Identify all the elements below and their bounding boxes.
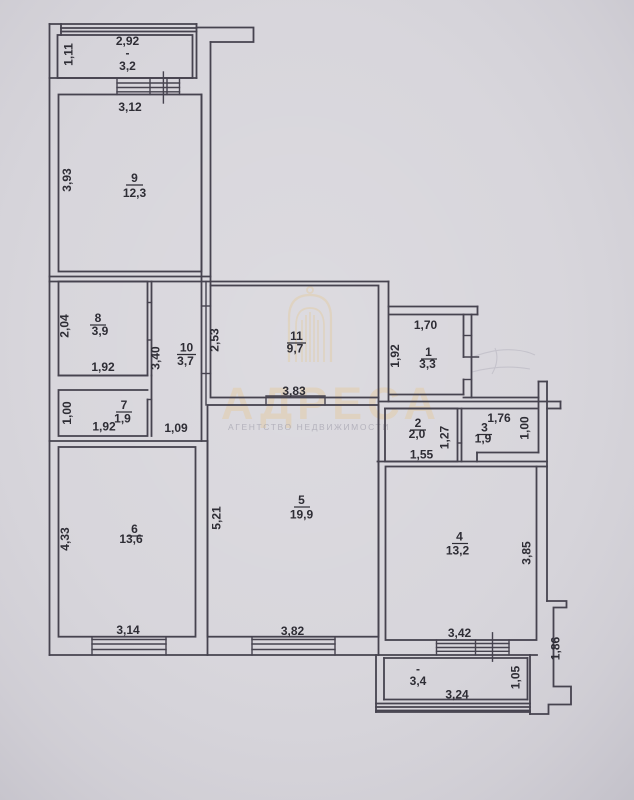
svg-text:1,09: 1,09: [164, 421, 188, 435]
svg-text:3,24: 3,24: [445, 688, 469, 702]
svg-text:7: 7: [121, 398, 128, 412]
svg-text:3,82: 3,82: [281, 624, 305, 638]
svg-text:1,92: 1,92: [91, 360, 115, 374]
svg-text:3,3: 3,3: [419, 357, 436, 371]
svg-text:3,12: 3,12: [118, 100, 142, 114]
svg-text:3,85: 3,85: [520, 541, 534, 565]
svg-text:АГЕНТСТВО НЕДВИЖИМОСТИ: АГЕНТСТВО НЕДВИЖИМОСТИ: [228, 422, 390, 432]
svg-text:12,3: 12,3: [123, 186, 147, 200]
svg-text:2,04: 2,04: [58, 314, 72, 338]
svg-text:3,2: 3,2: [119, 59, 136, 73]
svg-text:5,21: 5,21: [210, 506, 224, 530]
svg-text:5: 5: [298, 493, 305, 507]
svg-text:3,83: 3,83: [282, 384, 306, 398]
svg-text:3,93: 3,93: [60, 168, 74, 192]
svg-text:1,86: 1,86: [549, 636, 563, 660]
svg-text:1,92: 1,92: [388, 344, 402, 368]
svg-text:3,7: 3,7: [177, 354, 194, 368]
svg-text:1,9: 1,9: [475, 432, 492, 446]
svg-text:1,70: 1,70: [414, 318, 438, 332]
svg-text:8: 8: [95, 311, 102, 325]
svg-text:1,9: 1,9: [114, 412, 131, 426]
svg-text:1,55: 1,55: [410, 448, 434, 462]
svg-text:1,05: 1,05: [509, 665, 523, 689]
svg-text:1,11: 1,11: [62, 43, 76, 66]
svg-text:3,9: 3,9: [92, 324, 109, 338]
svg-text:1,27: 1,27: [438, 425, 452, 449]
svg-text:4: 4: [456, 530, 463, 544]
svg-text:9: 9: [131, 171, 138, 185]
svg-text:3,40: 3,40: [149, 346, 163, 370]
svg-text:3,14: 3,14: [116, 623, 140, 637]
svg-text:3,42: 3,42: [448, 626, 472, 640]
svg-text:2,53: 2,53: [208, 328, 222, 352]
svg-text:2,0: 2,0: [409, 427, 426, 441]
svg-text:4,33: 4,33: [58, 527, 72, 551]
svg-text:1,92: 1,92: [92, 420, 116, 434]
svg-text:3,4: 3,4: [410, 674, 427, 688]
svg-text:9,7: 9,7: [287, 342, 304, 356]
svg-text:1,76: 1,76: [487, 411, 511, 425]
svg-text:10: 10: [180, 341, 194, 355]
svg-text:13,2: 13,2: [446, 544, 470, 558]
svg-text:-: -: [126, 46, 130, 60]
svg-text:1,00: 1,00: [60, 401, 74, 425]
svg-text:19,9: 19,9: [290, 508, 314, 522]
svg-text:13,6: 13,6: [119, 532, 143, 546]
svg-text:1,00: 1,00: [518, 416, 532, 440]
